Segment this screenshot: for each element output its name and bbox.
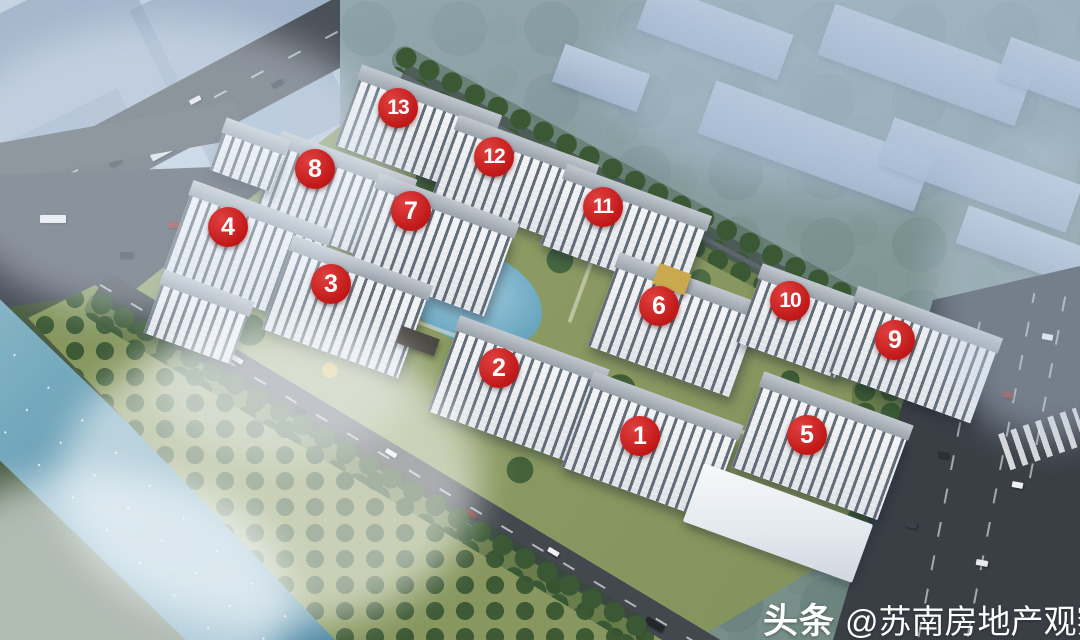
- watermark: 头条@苏南房地产观察: [763, 593, 1080, 640]
- building-marker-10: 10: [770, 281, 810, 321]
- mist: [150, 300, 410, 460]
- building-marker-1: 1: [620, 416, 660, 456]
- aerial-rendering: 1 2 3 4 5 6 7 8 9 10 11 12 13 头条@苏南房地产观察: [0, 0, 1080, 640]
- building-marker-3: 3: [311, 264, 351, 304]
- watermark-brand: 头条: [763, 602, 835, 640]
- building-marker-7: 7: [391, 191, 431, 231]
- building-marker-2: 2: [479, 348, 519, 388]
- watermark-handle: @苏南房地产观察: [845, 603, 1080, 640]
- building-marker-9: 9: [875, 320, 915, 360]
- building-marker-12: 12: [474, 137, 514, 177]
- building-marker-8: 8: [295, 149, 335, 189]
- building-marker-11: 11: [583, 187, 623, 227]
- building-marker-5: 5: [787, 415, 827, 455]
- building-marker-6: 6: [639, 286, 679, 326]
- building-marker-13: 13: [378, 88, 418, 128]
- building-marker-4: 4: [208, 207, 248, 247]
